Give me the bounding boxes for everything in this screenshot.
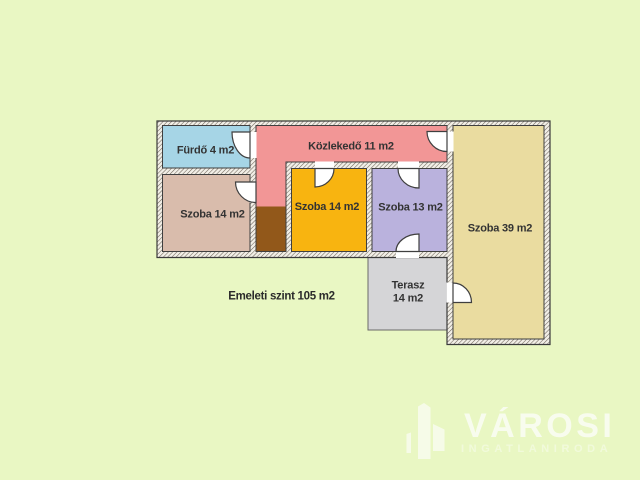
svg-text:14 m2: 14 m2 bbox=[393, 293, 423, 305]
svg-text:Szoba 13 m2: Szoba 13 m2 bbox=[378, 202, 443, 214]
svg-text:Terasz: Terasz bbox=[392, 280, 426, 292]
svg-text:Szoba 14 m2: Szoba 14 m2 bbox=[180, 209, 245, 221]
svg-text:Fürdő 4 m2: Fürdő 4 m2 bbox=[177, 145, 234, 157]
svg-text:VÁROSI: VÁROSI bbox=[464, 407, 615, 445]
svg-text:Szoba 14 m2: Szoba 14 m2 bbox=[295, 201, 360, 213]
svg-text:INGATLANIRODA: INGATLANIRODA bbox=[461, 443, 612, 455]
svg-text:Emeleti szint 105 m2: Emeleti szint 105 m2 bbox=[228, 291, 335, 303]
svg-text:Szoba 39 m2: Szoba 39 m2 bbox=[468, 223, 533, 235]
svg-text:Közlekedő 11 m2: Közlekedő 11 m2 bbox=[308, 141, 394, 153]
